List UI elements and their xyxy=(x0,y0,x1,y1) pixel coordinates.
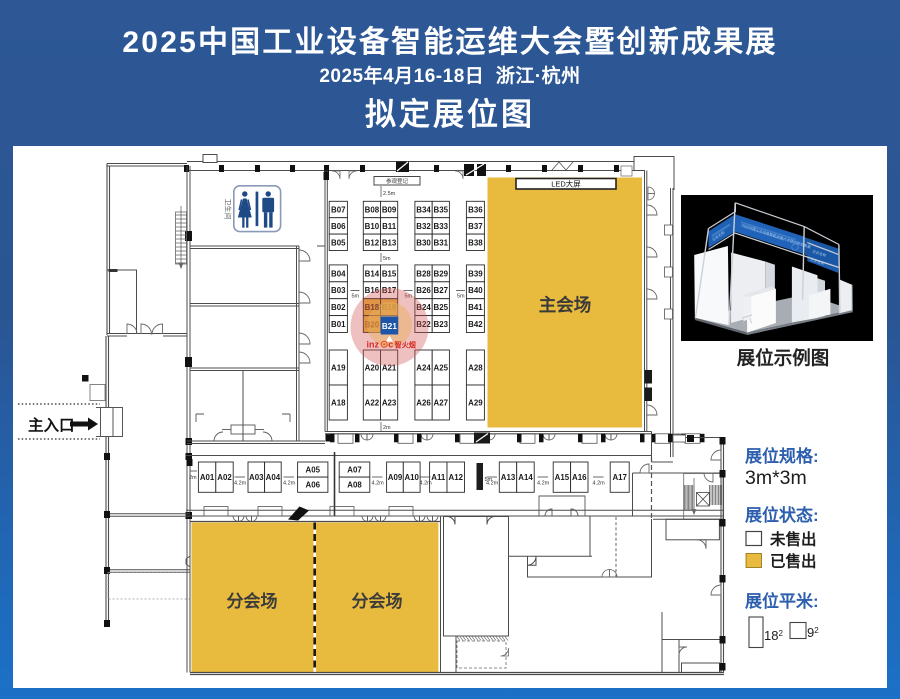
svg-text:B12: B12 xyxy=(365,238,380,247)
svg-text:B29: B29 xyxy=(434,269,449,278)
svg-text:LED大屏: LED大屏 xyxy=(551,179,581,189)
svg-text:A19: A19 xyxy=(331,364,346,373)
svg-text:展位平米:: 展位平米: xyxy=(745,591,819,611)
svg-text:B38: B38 xyxy=(468,238,483,247)
svg-text:A06: A06 xyxy=(306,481,321,490)
svg-text:B19: B19 xyxy=(382,303,397,312)
svg-text:5m: 5m xyxy=(352,294,360,300)
svg-text:B32: B32 xyxy=(416,222,431,231)
svg-text:4.2m: 4.2m xyxy=(486,481,499,487)
svg-text:A04: A04 xyxy=(266,473,281,482)
svg-text:c: c xyxy=(388,340,393,350)
svg-text:B33: B33 xyxy=(434,222,449,231)
svg-text:智火煜: 智火煜 xyxy=(395,340,417,349)
svg-text:B11: B11 xyxy=(382,222,397,231)
svg-text:B31: B31 xyxy=(434,238,449,247)
svg-text:B13: B13 xyxy=(382,238,397,247)
svg-text:2m: 2m xyxy=(383,425,391,431)
svg-text:展位示例图: 展位示例图 xyxy=(737,348,830,369)
svg-text:未售出: 未售出 xyxy=(769,530,817,549)
svg-text:2.5m: 2.5m xyxy=(383,191,396,197)
svg-text:4.2m: 4.2m xyxy=(537,481,550,487)
svg-text:B23: B23 xyxy=(434,320,449,329)
svg-text:A09: A09 xyxy=(388,473,403,482)
svg-text:4.2m: 4.2m xyxy=(234,481,247,487)
svg-text:B03: B03 xyxy=(331,286,346,295)
svg-text:B15: B15 xyxy=(382,269,397,278)
svg-text:B08: B08 xyxy=(365,206,380,215)
svg-text:B36: B36 xyxy=(468,206,483,215)
svg-text:B21: B21 xyxy=(382,322,397,331)
svg-text:B41: B41 xyxy=(468,303,483,312)
svg-text:B02: B02 xyxy=(331,303,346,312)
svg-text:A18: A18 xyxy=(331,399,346,408)
svg-text:B09: B09 xyxy=(382,206,397,215)
svg-text:5m: 5m xyxy=(457,294,465,300)
svg-text:4.2m: 4.2m xyxy=(372,481,385,487)
svg-text:B01: B01 xyxy=(331,320,346,329)
svg-text:A16: A16 xyxy=(572,473,587,482)
svg-text:展位规格:: 展位规格: xyxy=(745,446,819,466)
svg-text:A20: A20 xyxy=(365,364,380,373)
svg-text:B34: B34 xyxy=(416,206,431,215)
svg-text:B25: B25 xyxy=(434,303,449,312)
svg-text:A13: A13 xyxy=(501,473,516,482)
svg-text:B28: B28 xyxy=(416,269,431,278)
svg-text:B06: B06 xyxy=(331,222,346,231)
svg-text:B07: B07 xyxy=(331,206,346,215)
svg-text:A01: A01 xyxy=(200,473,215,482)
svg-text:B35: B35 xyxy=(434,206,449,215)
svg-text:B27: B27 xyxy=(434,286,449,295)
svg-text:3m*3m: 3m*3m xyxy=(745,467,807,489)
svg-text:B37: B37 xyxy=(468,222,483,231)
svg-text:已售出: 已售出 xyxy=(770,552,817,571)
svg-text:B39: B39 xyxy=(468,269,483,278)
svg-text:A17: A17 xyxy=(612,473,627,482)
svg-text:B26: B26 xyxy=(416,286,431,295)
svg-text:4.2m: 4.2m xyxy=(420,481,433,487)
svg-text:B10: B10 xyxy=(365,222,380,231)
svg-text:B40: B40 xyxy=(468,286,483,295)
svg-text:A07: A07 xyxy=(347,466,362,475)
svg-text:主入口: 主入口 xyxy=(28,416,75,435)
svg-text:展位状态:: 展位状态: xyxy=(745,505,819,525)
svg-text:A02: A02 xyxy=(217,473,232,482)
svg-text:B04: B04 xyxy=(331,269,346,278)
svg-text:主会场: 主会场 xyxy=(539,295,592,315)
svg-text:A03: A03 xyxy=(249,473,264,482)
svg-text:A22: A22 xyxy=(365,399,380,408)
svg-text:A23: A23 xyxy=(382,399,397,408)
svg-text:A26: A26 xyxy=(416,399,431,408)
svg-text:A15: A15 xyxy=(555,473,570,482)
svg-text:A11: A11 xyxy=(431,473,446,482)
svg-text:B14: B14 xyxy=(365,269,380,278)
svg-text:分会场: 分会场 xyxy=(352,591,403,611)
svg-text:B20: B20 xyxy=(365,321,380,330)
svg-text:A25: A25 xyxy=(434,364,449,373)
svg-text:A08: A08 xyxy=(347,481,362,490)
svg-text:A14: A14 xyxy=(518,473,533,482)
svg-text:inz: inz xyxy=(367,340,380,350)
svg-text:B18: B18 xyxy=(365,303,380,312)
svg-text:B30: B30 xyxy=(416,238,431,247)
svg-text:4.2m: 4.2m xyxy=(593,481,606,487)
svg-text:卫生间: 卫生间 xyxy=(224,199,233,220)
svg-text:分会场: 分会场 xyxy=(227,591,278,611)
svg-text:4.2m: 4.2m xyxy=(283,481,296,487)
svg-text:5m: 5m xyxy=(383,256,391,262)
svg-text:A28: A28 xyxy=(468,364,483,373)
svg-text:A05: A05 xyxy=(306,466,321,475)
svg-text:A10: A10 xyxy=(404,473,419,482)
svg-text:A12: A12 xyxy=(449,473,464,482)
svg-text:B42: B42 xyxy=(468,320,483,329)
svg-text:A29: A29 xyxy=(468,399,483,408)
svg-text:A27: A27 xyxy=(434,399,449,408)
svg-text:2m: 2m xyxy=(189,475,197,481)
svg-text:A24: A24 xyxy=(416,364,431,373)
svg-text:B05: B05 xyxy=(331,238,346,247)
svg-text:参观登记: 参观登记 xyxy=(386,177,409,185)
